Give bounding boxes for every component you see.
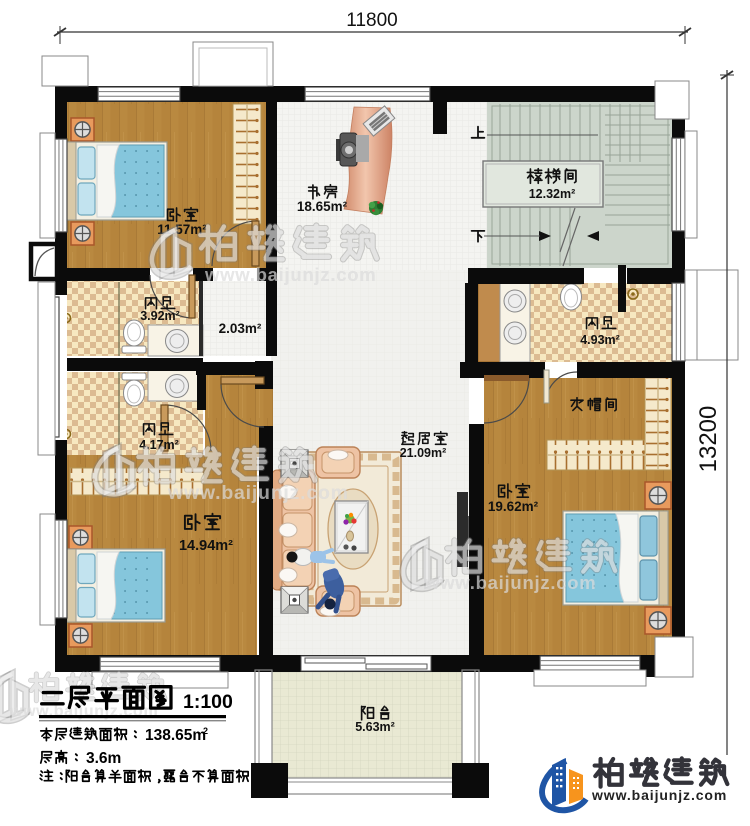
svg-text:18.65m²: 18.65m² — [297, 199, 348, 214]
svg-text:13200: 13200 — [695, 406, 722, 473]
svg-text:2.03m²: 2.03m² — [219, 321, 262, 336]
svg-text:www.baijunjz.com: www.baijunjz.com — [591, 787, 727, 803]
svg-text:www.baijunjz.com: www.baijunjz.com — [424, 572, 597, 593]
svg-text:www.baijunjz.com: www.baijunjz.com — [204, 264, 377, 285]
svg-text:3.6m: 3.6m — [86, 750, 121, 767]
svg-text:19.62m²: 19.62m² — [488, 499, 539, 514]
svg-text:2: 2 — [203, 726, 208, 736]
svg-text:www.baijunjz.com: www.baijunjz.com — [167, 482, 349, 504]
svg-text:5.63m²: 5.63m² — [355, 720, 395, 734]
svg-text:4.93m²: 4.93m² — [580, 333, 620, 347]
svg-text:1:100: 1:100 — [183, 691, 233, 713]
svg-text:3.92m²: 3.92m² — [140, 309, 180, 323]
svg-text:138.65m: 138.65m — [145, 727, 206, 744]
svg-text:11800: 11800 — [346, 10, 397, 31]
svg-text:14.94m²: 14.94m² — [179, 538, 233, 554]
svg-text:21.09m²: 21.09m² — [400, 446, 447, 460]
svg-text:12.32m²: 12.32m² — [529, 187, 576, 201]
